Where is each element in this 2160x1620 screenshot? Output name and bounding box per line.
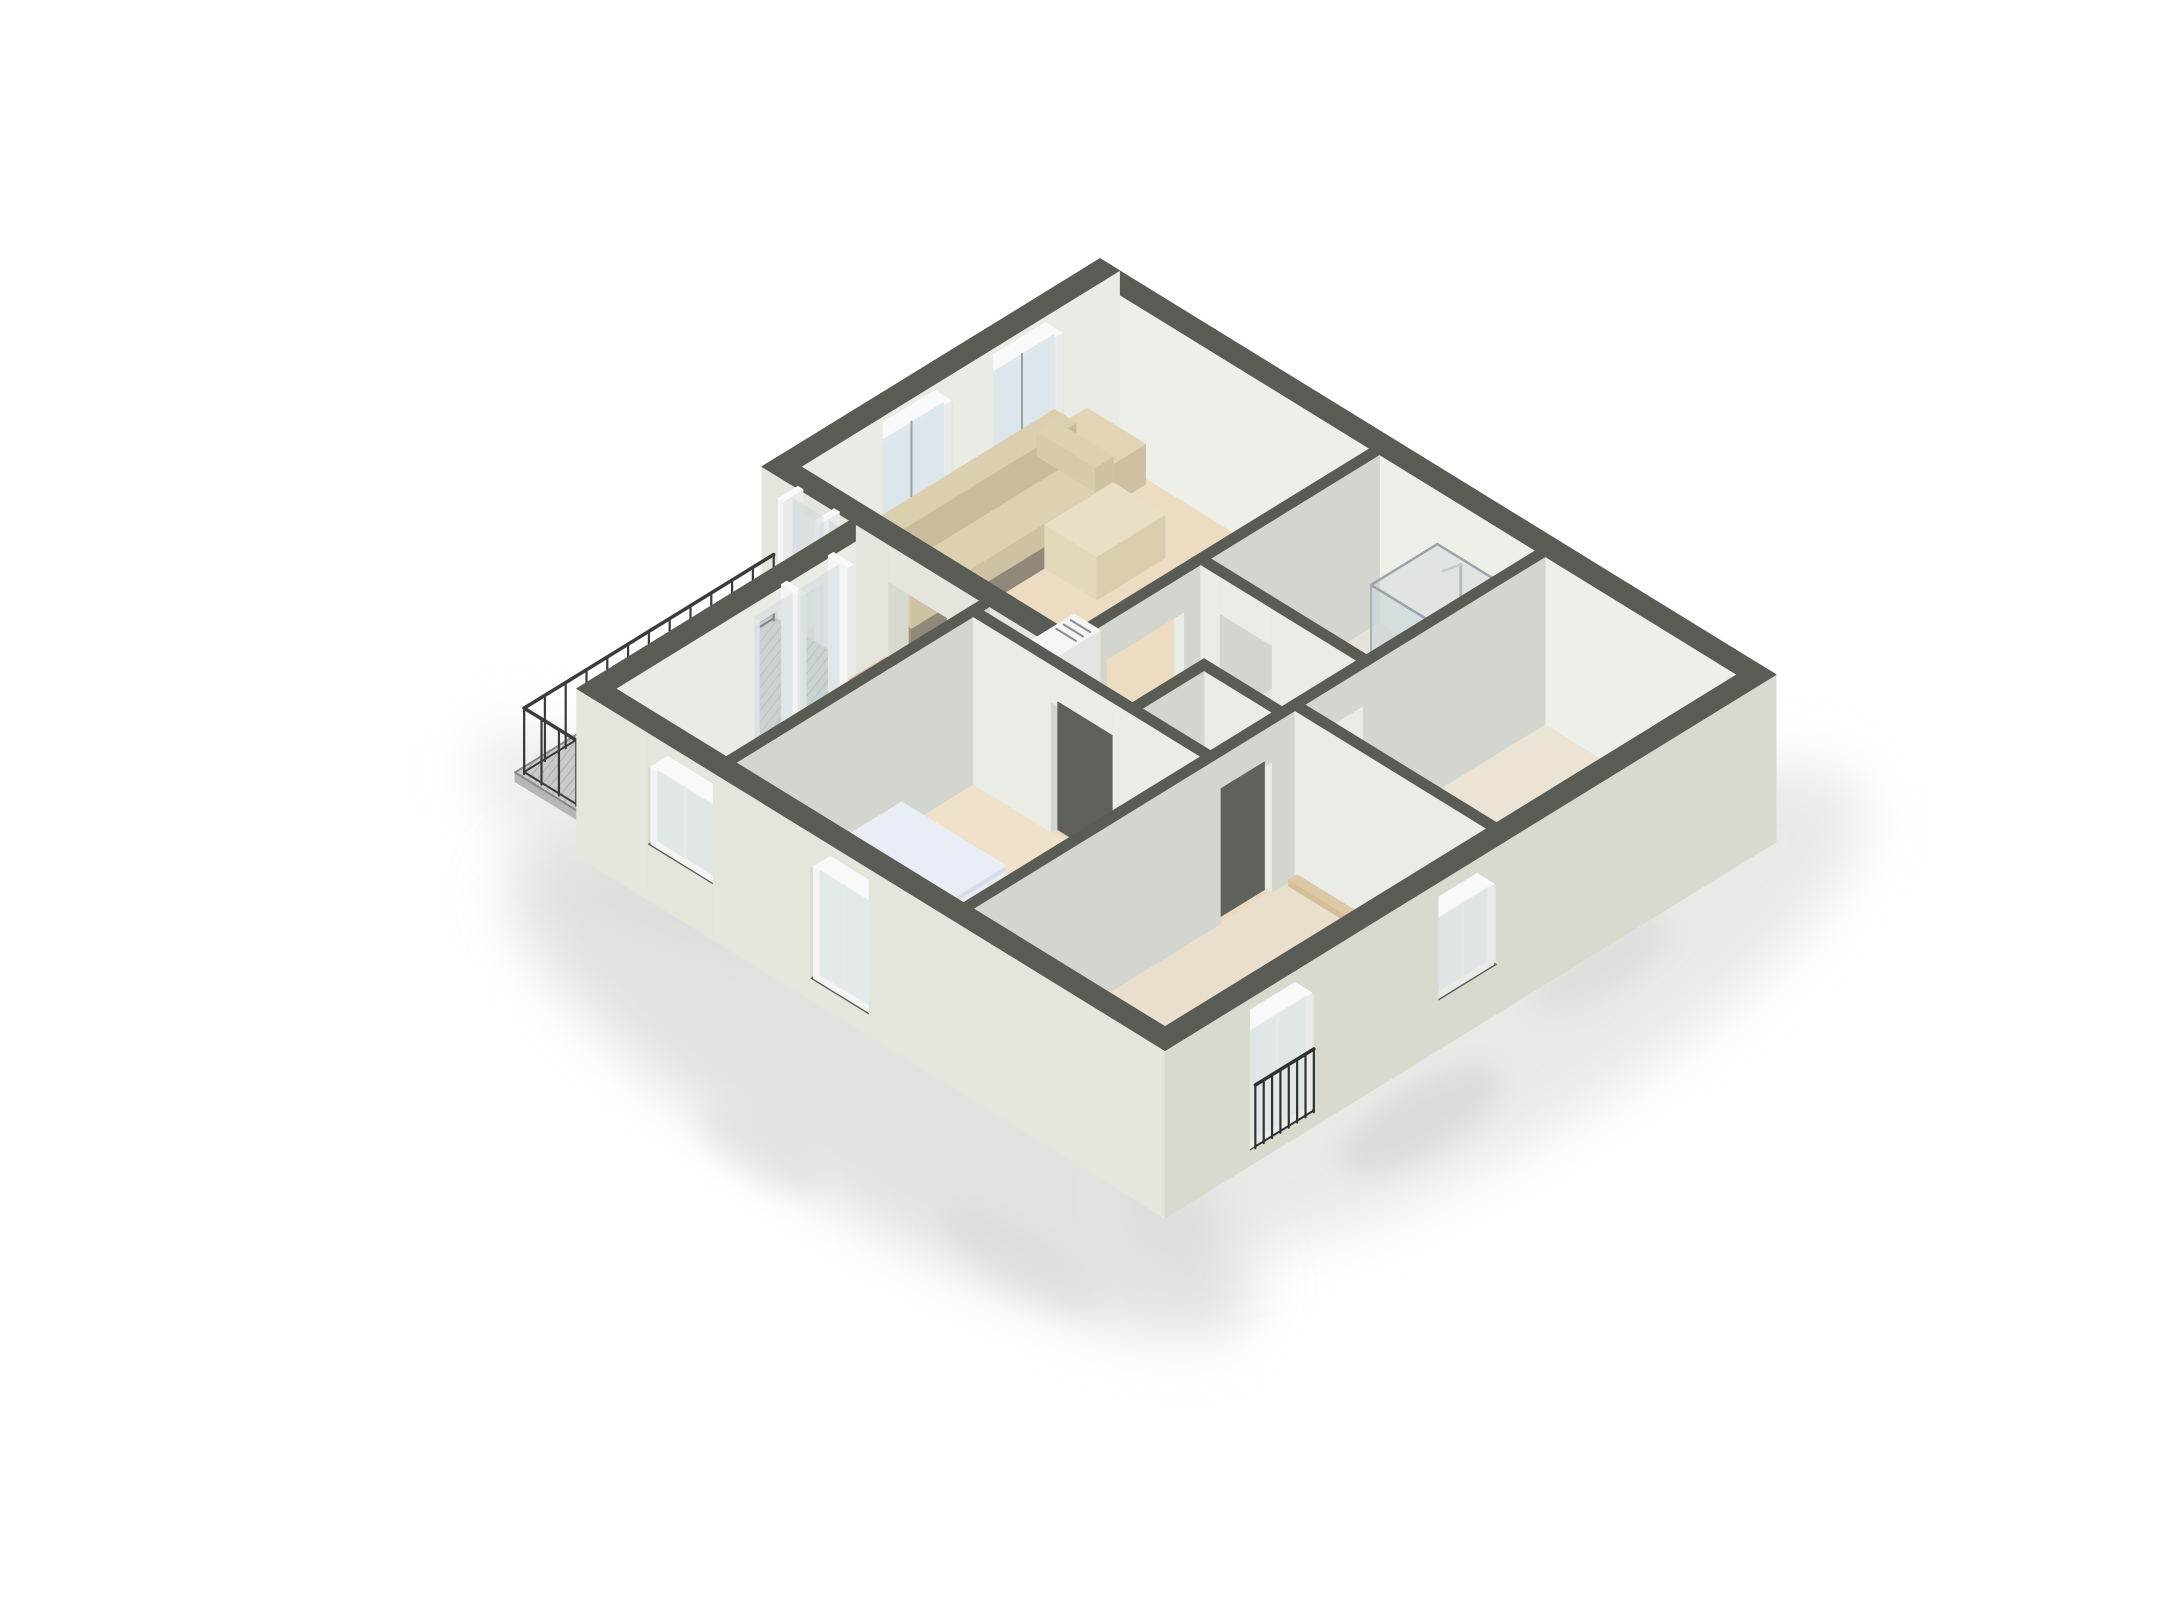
floorplan-3d-render: 3D isometric floor plan rendering of an … — [0, 0, 2160, 1620]
floorplan-canvas — [0, 0, 2160, 1620]
